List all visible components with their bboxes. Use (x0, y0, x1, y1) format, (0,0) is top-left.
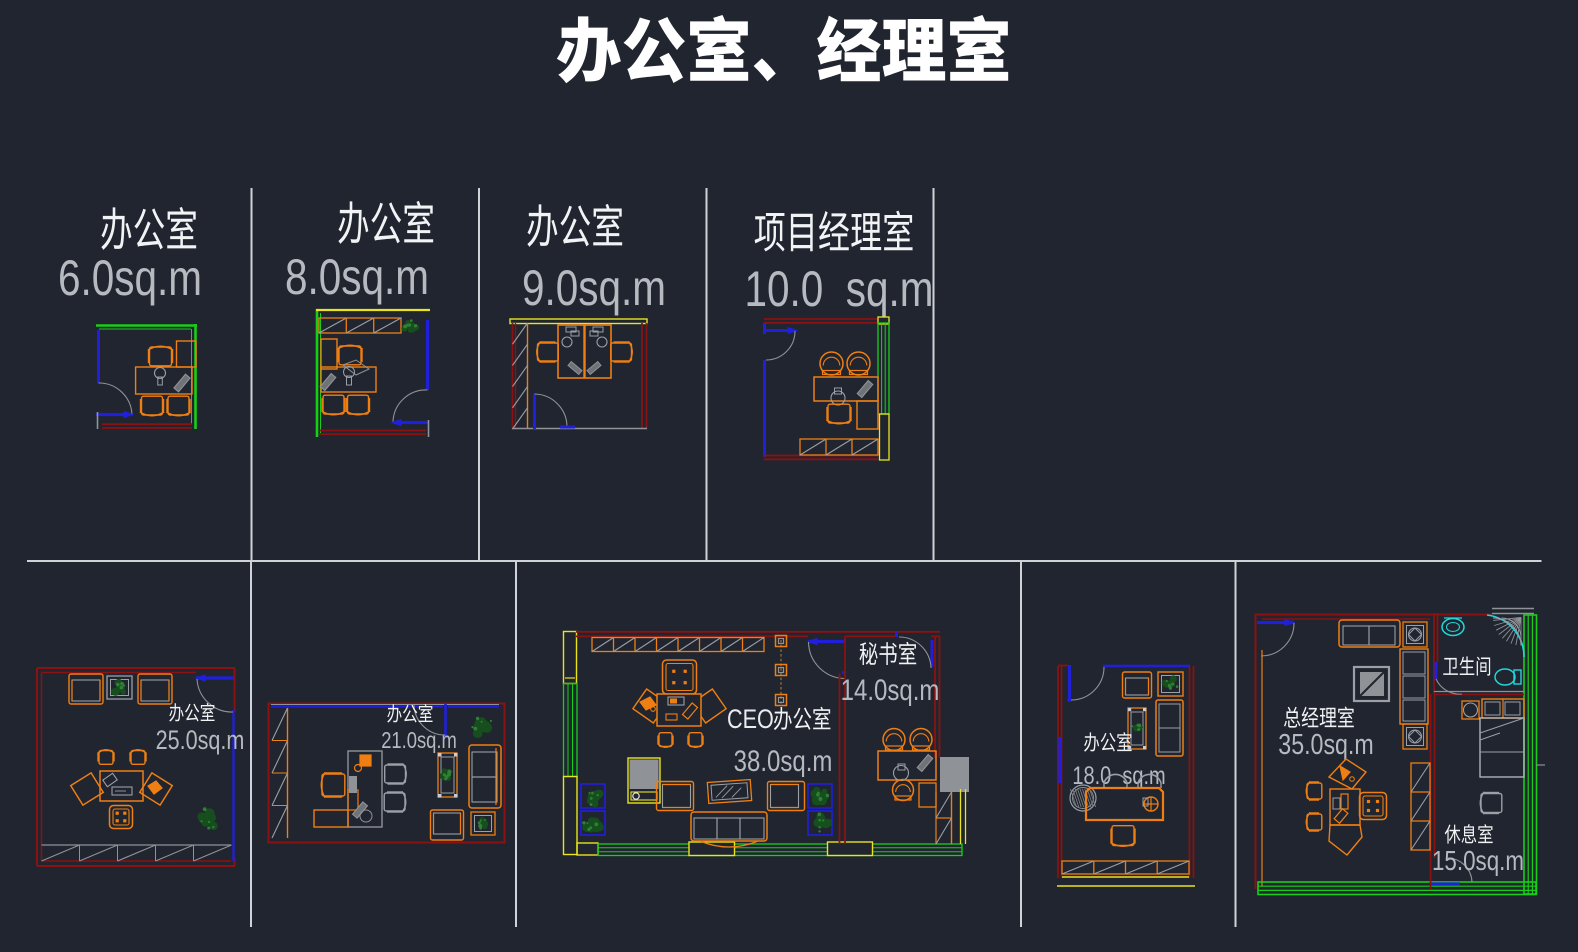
svg-text:9.0sq.m: 9.0sq.m (522, 260, 666, 316)
svg-text:25.0sq.m: 25.0sq.m (156, 726, 245, 756)
svg-text:6.0sq.m: 6.0sq.m (58, 250, 202, 306)
svg-text:35.0sq.m: 35.0sq.m (1278, 727, 1373, 760)
svg-text:CEO: CEO (727, 705, 774, 735)
svg-text:14.0sq.m: 14.0sq.m (841, 672, 940, 706)
svg-text:21.0sq.m: 21.0sq.m (381, 728, 457, 753)
svg-text:10.0 sq.m: 10.0 sq.m (744, 261, 933, 317)
svg-text:8.0sq.m: 8.0sq.m (285, 249, 429, 305)
svg-text:15.0sq.m: 15.0sq.m (1432, 846, 1524, 877)
svg-text:38.0sq.m: 38.0sq.m (734, 743, 833, 777)
